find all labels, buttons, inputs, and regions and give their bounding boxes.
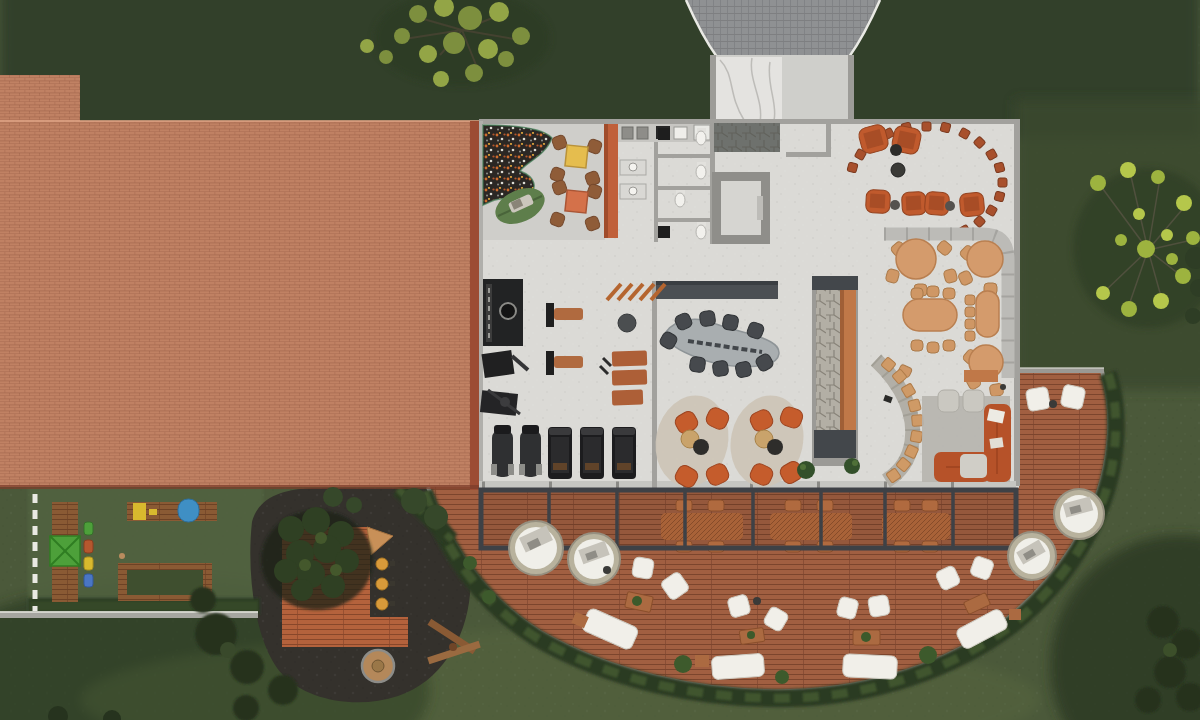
spring-toy-4 (84, 574, 93, 587)
conference-chair-5 (689, 356, 706, 373)
garden-stool-side-1 (390, 561, 395, 566)
elliptical-2-pedal-r (536, 464, 542, 475)
deck-side-table-5 (1009, 609, 1021, 620)
patio-accent-wall-shade (604, 124, 608, 238)
right-tree-cluster-13 (1133, 208, 1145, 220)
bench-1-frame (546, 303, 554, 327)
deck-side-table-6 (1049, 400, 1057, 408)
gym-divider-wall (652, 281, 657, 488)
toilet-2 (696, 165, 706, 179)
restroom-mat-2 (658, 226, 670, 238)
outdoor-dining-table-3-weave (882, 513, 950, 540)
elliptical-2-pedal-l (519, 464, 525, 475)
gym-machine-1 (481, 350, 514, 378)
right-tree-cluster-2 (1120, 162, 1136, 178)
elliptical-1-arms (494, 425, 511, 434)
row-armchair-3-cushion (929, 195, 945, 210)
long-table-chair-4 (911, 340, 923, 351)
deck-armchair-10 (1060, 384, 1086, 410)
br-tree-1 (1147, 606, 1179, 638)
treadmill-2-detail (585, 463, 599, 470)
toilet-1 (696, 131, 706, 145)
bl-tree-4 (268, 675, 298, 705)
elliptical-1-pedal-l (491, 464, 497, 475)
spring-toy-1 (84, 522, 93, 535)
kitchen-appliance-2 (637, 127, 648, 139)
lounge-armchair-1 (938, 390, 959, 412)
platform-tree-canopy-8 (274, 559, 298, 583)
top-tree-cluster-3 (458, 6, 482, 30)
aerial-floorplan-rendering (0, 0, 1200, 720)
br-tree-3 (1154, 656, 1186, 688)
bl-tree-2 (230, 650, 264, 684)
od-chair-2 (708, 500, 724, 511)
outdoor-dining-table-1-weave (661, 513, 743, 540)
platform-tree-canopy-1 (278, 516, 304, 542)
right-tree-cluster-12 (1115, 234, 1127, 246)
bar-stool-6 (922, 122, 931, 131)
boundary-wall-highlight (0, 611, 258, 613)
bench-1-pad (554, 308, 583, 320)
slate-feature-texture (714, 123, 780, 152)
conference-chair-3 (722, 314, 739, 331)
deck-coffee-plant-1 (632, 596, 642, 606)
deck-coffee-plant-2 (747, 631, 755, 639)
scene-svg (0, 0, 1200, 720)
entry-plaza-pavers (686, 0, 880, 57)
bar-stool-13 (994, 191, 1005, 202)
top-tree-cluster-5 (512, 27, 530, 45)
right-tree-cluster-11 (1161, 229, 1173, 241)
bar-plant-1 (797, 461, 815, 479)
garden-bush-4 (346, 497, 362, 513)
toilet-3 (675, 193, 685, 207)
lounge-bench-wood (964, 370, 998, 382)
long-table-chair-1 (911, 288, 923, 299)
bar-cap-bottom (814, 430, 856, 458)
spring-toy-2 (84, 540, 93, 553)
deck-coffee-plant-3 (861, 632, 871, 642)
climber-yellow-1 (133, 503, 146, 520)
row-armchair-1-cushion (870, 194, 886, 209)
bar-coffee-table-1 (890, 144, 902, 156)
br-tree-highlight (1163, 643, 1177, 657)
od-chair-9 (894, 500, 910, 511)
right-tree-cluster-10 (1137, 240, 1155, 258)
roof-right-wall (470, 121, 480, 490)
deck-side-table-3 (695, 655, 709, 667)
side-table-black-1 (693, 439, 709, 455)
top-tree-cluster-13 (379, 50, 393, 64)
deck-armchair-6 (867, 594, 890, 617)
sofa-pillow-2 (989, 437, 1003, 449)
right-tree-cluster-3 (1151, 170, 1165, 184)
top-tree-cluster-7 (443, 32, 465, 54)
lounge-armchair-2 (963, 390, 984, 412)
elevator-door (757, 196, 763, 220)
garden-stool-1 (376, 558, 388, 570)
bar-stone-joints (816, 284, 840, 452)
row-armchair-2-cushion (906, 196, 922, 211)
bar-plant-2-highlight (852, 460, 858, 466)
deck-grass-1 (674, 655, 692, 673)
long-table-chair-3 (943, 288, 955, 299)
deck-side-table-1 (603, 566, 611, 574)
vanity-sink-1 (629, 163, 637, 171)
bar-wood-edge (840, 282, 844, 432)
lounge-ottoman (960, 454, 987, 478)
right-tree-cluster-7 (1153, 293, 1169, 309)
vanity-sink-2 (629, 187, 637, 195)
garden-stool-3 (376, 598, 388, 610)
bar-stool-1 (847, 162, 858, 173)
deck-right-wall-highlight (1018, 367, 1104, 369)
booth-chair-2 (965, 307, 975, 317)
right-tree-cluster-1 (1090, 175, 1106, 191)
gym-rack-plate (500, 303, 516, 319)
hall-wall-2 (786, 152, 831, 157)
long-table-chair-5 (927, 342, 939, 353)
seesaw-pivot (449, 643, 457, 651)
bl-tree-highlight (220, 642, 236, 658)
bar-stool-11 (994, 162, 1005, 173)
toilet-4 (696, 225, 706, 239)
spring-toy-3 (84, 557, 93, 570)
patio-table-yellow (565, 145, 588, 168)
roof-step-bricks (0, 75, 80, 123)
bar-cap-top (812, 276, 858, 290)
roof-top-highlight (0, 120, 479, 122)
roof-bottom-shadow (0, 485, 479, 489)
dining-table-1 (896, 239, 936, 279)
platform-tree-highlight-3 (330, 564, 342, 576)
kitchen-sink (674, 127, 687, 139)
elevator-cab (721, 181, 761, 235)
right-tree-cluster-9 (1096, 286, 1110, 300)
treadmill-1-console (549, 428, 571, 435)
long-table-chair-6 (943, 340, 955, 351)
bench-2-pad (554, 356, 583, 368)
sandbox-inner (127, 570, 203, 595)
conference-chair-2 (699, 310, 716, 327)
right-tree-cluster-4 (1176, 195, 1192, 211)
long-table-chair-2 (927, 286, 939, 297)
bar-plant-1-highlight (800, 464, 806, 470)
side-table-black-2 (767, 439, 783, 455)
bl-tree-5 (233, 695, 259, 720)
top-tree-cluster-6 (478, 39, 498, 59)
gym-machine-seat (500, 397, 510, 407)
garden-bush-2 (424, 505, 448, 529)
booth-chair-3 (965, 319, 975, 329)
entry-corridor-wall-right (848, 55, 854, 123)
platform-tree-canopy-9 (321, 574, 345, 598)
bar-stool-12 (998, 178, 1007, 187)
od-chair-5 (785, 500, 801, 511)
row-side-table-2 (945, 201, 955, 211)
conference-chair-7 (735, 361, 753, 379)
top-tree-cluster-1 (409, 5, 427, 23)
fire-pit-inner (372, 660, 384, 672)
play-figure (119, 553, 125, 559)
treadmill-3-detail (617, 463, 631, 470)
medicine-ball (618, 314, 636, 332)
entry-corridor-wall-left (710, 55, 716, 123)
garden-bush-1 (401, 488, 427, 514)
gym-machine-2 (480, 390, 518, 416)
bl-tree-3 (190, 587, 216, 613)
deck-armchair-1 (631, 556, 654, 579)
elliptical-1-pedal-r (508, 464, 514, 475)
floor-lamp (1000, 384, 1006, 390)
right-tree-cluster-6 (1175, 268, 1191, 284)
bench-stool-5 (912, 415, 924, 427)
wood-platform-ext-planks (370, 617, 408, 647)
right-tree-cluster-5 (1186, 231, 1200, 245)
booth-chair-1 (965, 295, 975, 305)
deck-side-table-4 (753, 597, 761, 605)
platform-tree-canopy-10 (291, 579, 313, 601)
bar-plant-2 (844, 458, 860, 474)
row-armchair-4-cushion (963, 196, 979, 211)
deck-grass-4 (463, 556, 477, 570)
deck-armchair-9 (1025, 386, 1050, 411)
br-tree-5 (1135, 687, 1161, 713)
restroom-wall-h1 (654, 154, 714, 158)
deck-grass-3 (919, 646, 937, 664)
top-tree-cluster-8 (419, 45, 437, 63)
gym-mat-2 (612, 369, 648, 385)
top-tree-cluster-11 (433, 71, 449, 87)
top-tree-cluster-10 (465, 64, 483, 82)
media-wall-top (656, 281, 778, 285)
outdoor-dining-table-2-weave (770, 513, 852, 540)
kitchen-appliance-1 (622, 127, 633, 139)
playground-hedge-texture (30, 601, 258, 611)
roof-bricks (0, 121, 479, 487)
treadmill-1-detail (553, 463, 567, 470)
top-tree-cluster-12 (498, 51, 514, 67)
right-tree-cluster-8 (1121, 301, 1137, 317)
top-tree-cluster-4 (489, 2, 509, 22)
od-chair-10 (922, 500, 938, 511)
restroom-wall-h3 (654, 218, 714, 222)
patio-table-orange (565, 190, 588, 213)
deck-sofa-2 (711, 653, 764, 680)
platform-tree-highlight-2 (299, 559, 311, 571)
climber-yellow-2 (149, 509, 157, 515)
platform-tree-highlight-1 (315, 532, 327, 544)
elliptical-2-arms (522, 425, 539, 434)
booth-chair-4 (965, 331, 975, 341)
top-tree-cluster-14 (360, 39, 374, 53)
treadmill-2-console (581, 428, 603, 435)
dining-table-2 (967, 241, 1003, 277)
climber-barrel (178, 499, 199, 522)
garden-stool-side-3 (390, 601, 395, 606)
building-wall-right (1014, 119, 1020, 486)
right-tree-cluster-14 (1166, 253, 1178, 265)
dining-long-table (903, 299, 957, 331)
treadmill-3-console (613, 428, 635, 435)
gym-mat-3 (612, 389, 644, 405)
row-side-table-1 (890, 200, 900, 210)
platform-tree-canopy-2 (302, 507, 330, 535)
garden-bush-3 (323, 487, 343, 507)
garden-stool-2 (376, 578, 388, 590)
top-tree-cluster-9 (394, 28, 410, 44)
bench-stool-4 (908, 399, 921, 412)
deck-sofa-3 (842, 654, 897, 680)
restroom-mat-1 (658, 128, 670, 140)
deck-grass-5 (482, 590, 496, 604)
restroom-wall-h2 (654, 186, 714, 190)
garden-stool-side-2 (390, 581, 395, 586)
dining-booth-table (976, 291, 999, 337)
gym-mat-1 (612, 350, 648, 366)
bar-coffee-table-2 (891, 163, 905, 177)
deck-grass-2 (775, 670, 789, 684)
bench-stool-6 (910, 430, 923, 443)
conference-chair-6 (712, 360, 729, 377)
hall-wall-1 (826, 122, 831, 156)
bench-2-frame (546, 351, 554, 375)
bar-stool-7 (940, 122, 951, 133)
